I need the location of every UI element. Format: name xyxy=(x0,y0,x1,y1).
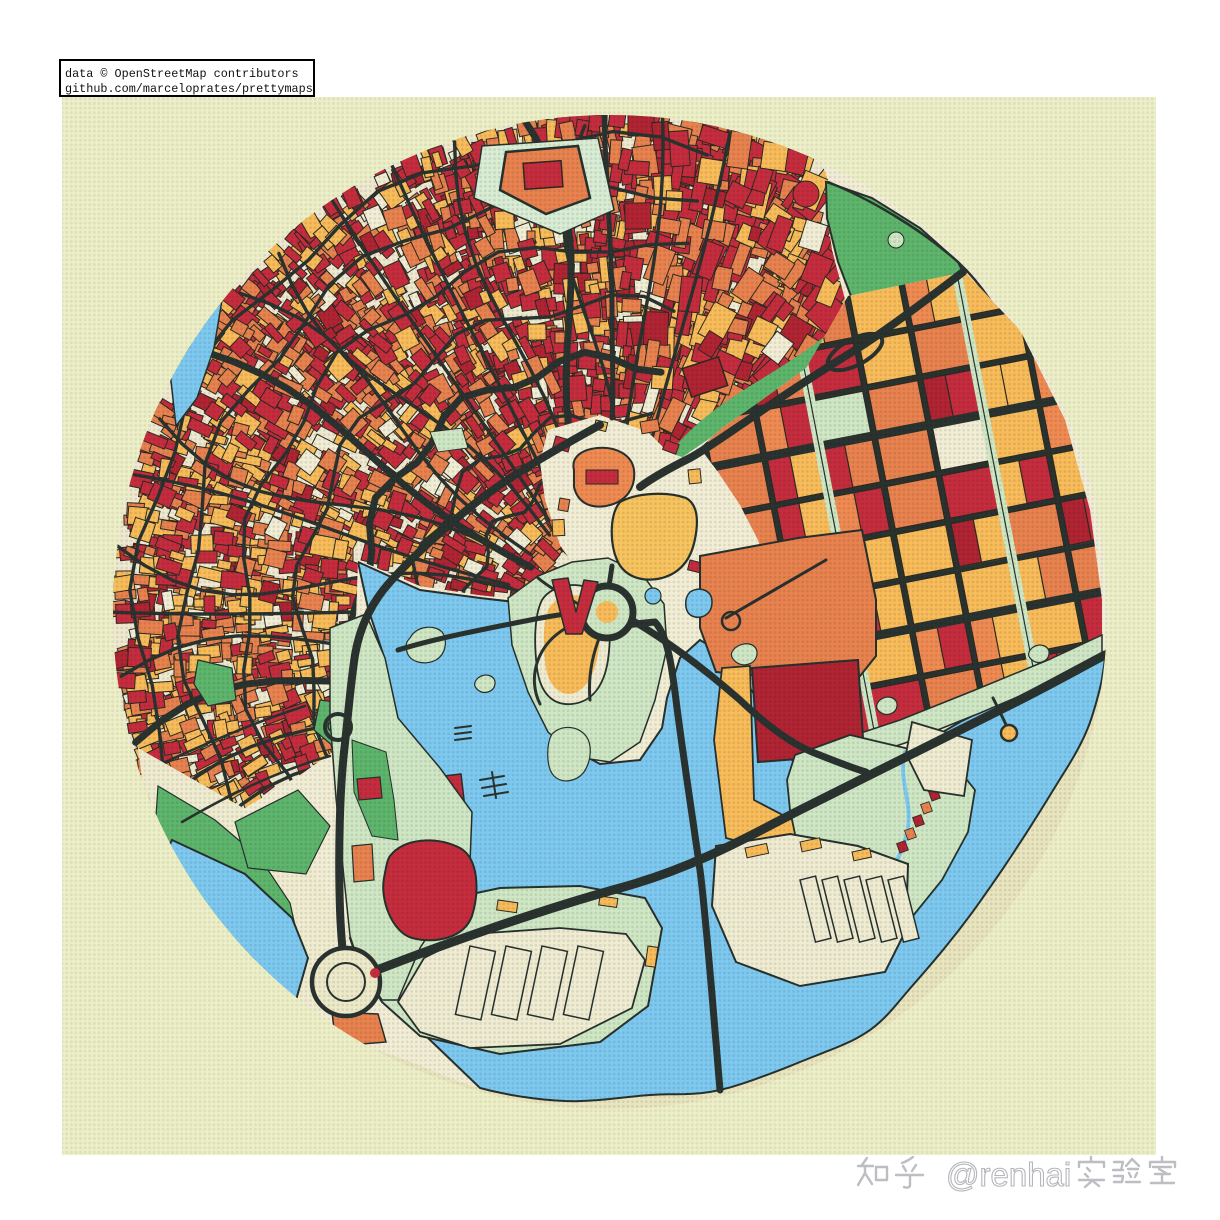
svg-text:github.com/marceloprates/prett: github.com/marceloprates/prettymaps xyxy=(65,82,313,96)
svg-text:data © OpenStreetMap contribut: data © OpenStreetMap contributors xyxy=(65,67,299,81)
svg-text:@renhai: @renhai xyxy=(946,1156,1071,1193)
